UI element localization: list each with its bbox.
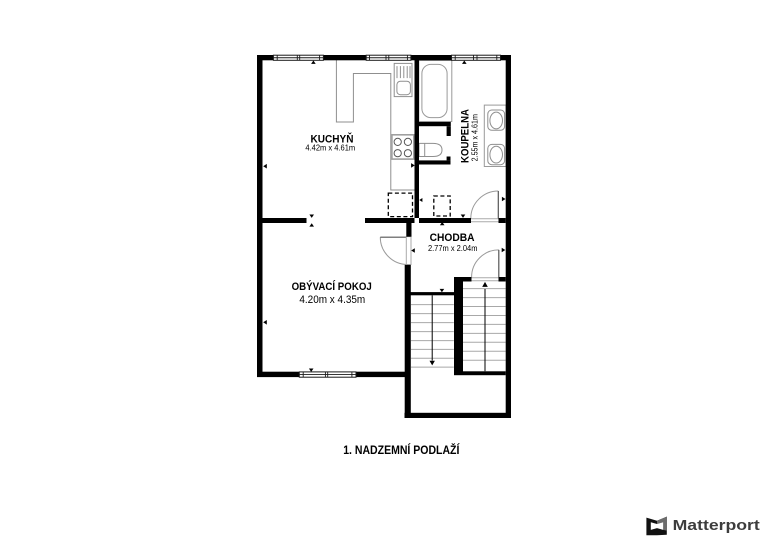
svg-text:1. NADZEMNÍ PODLAŽÍ: 1. NADZEMNÍ PODLAŽÍ	[343, 444, 460, 457]
svg-text:4.20m x 4.35m: 4.20m x 4.35m	[299, 294, 365, 306]
svg-text:CHODBA: CHODBA	[430, 232, 475, 244]
svg-text:2.77m x 2.04m: 2.77m x 2.04m	[428, 244, 478, 253]
svg-text:OBÝVACÍ POKOJ: OBÝVACÍ POKOJ	[292, 280, 372, 293]
svg-text:4.42m x 4.61m: 4.42m x 4.61m	[305, 144, 355, 153]
svg-text:2.55m x 4.61m: 2.55m x 4.61m	[470, 114, 479, 161]
svg-text:Matterport: Matterport	[673, 518, 760, 534]
